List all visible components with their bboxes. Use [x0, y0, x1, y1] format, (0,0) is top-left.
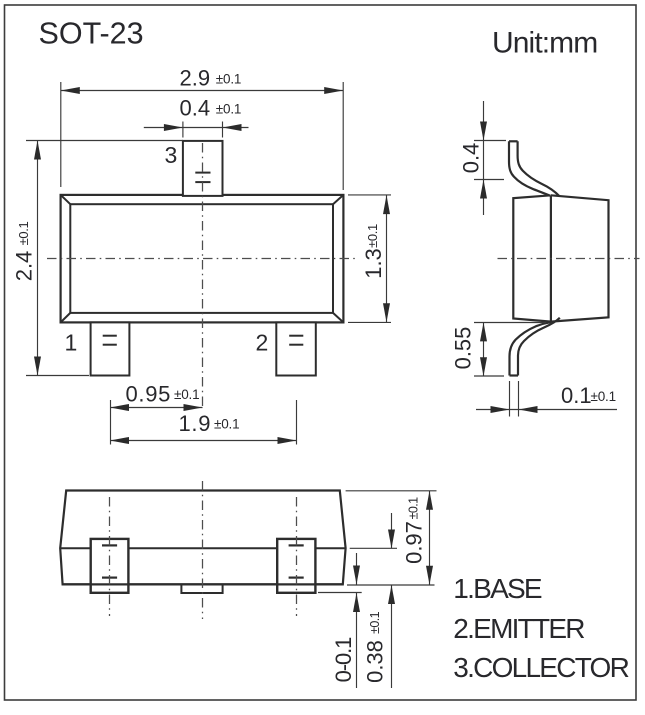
svg-text:2.EMITTER: 2.EMITTER	[453, 613, 584, 644]
svg-text:3.COLLECTOR: 3.COLLECTOR	[453, 652, 628, 683]
svg-text:±0.1: ±0.1	[16, 222, 31, 246]
svg-text:0.95: 0.95	[126, 382, 172, 407]
svg-text:0.4: 0.4	[180, 96, 211, 121]
svg-text:±0.1: ±0.1	[216, 72, 241, 87]
svg-text:±0.1: ±0.1	[365, 224, 380, 248]
svg-text:Unit:mm: Unit:mm	[492, 27, 597, 60]
svg-text:2: 2	[256, 330, 269, 356]
svg-text:1.BASE: 1.BASE	[453, 573, 542, 604]
svg-text:3: 3	[165, 142, 178, 168]
svg-text:1.3: 1.3	[361, 248, 386, 279]
svg-text:SOT-23: SOT-23	[39, 17, 144, 51]
svg-text:±0.1: ±0.1	[214, 417, 239, 432]
svg-text:0.55: 0.55	[451, 327, 476, 370]
svg-text:0.1: 0.1	[561, 383, 592, 408]
svg-text:±0.1: ±0.1	[591, 389, 616, 404]
svg-text:±0.1: ±0.1	[216, 102, 241, 117]
svg-text:2.4: 2.4	[12, 251, 37, 282]
svg-text:1.9: 1.9	[179, 411, 212, 436]
svg-text:0.97: 0.97	[402, 521, 427, 564]
svg-text:0.4: 0.4	[459, 143, 484, 174]
svg-text:±0.1: ±0.1	[368, 611, 382, 633]
svg-text:2.9: 2.9	[180, 66, 211, 91]
svg-text:0.38: 0.38	[363, 640, 388, 683]
svg-text:0-0.1: 0-0.1	[331, 637, 356, 683]
svg-text:1: 1	[65, 330, 78, 356]
svg-text:±0.1: ±0.1	[174, 387, 199, 402]
svg-text:±0.1: ±0.1	[407, 497, 421, 519]
